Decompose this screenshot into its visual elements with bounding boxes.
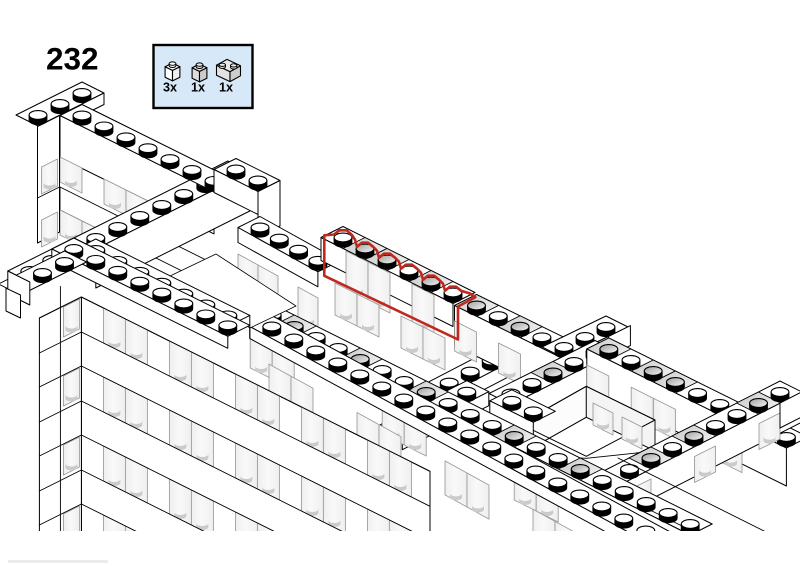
svg-text:232: 232: [46, 41, 99, 77]
svg-text:1x: 1x: [219, 81, 233, 95]
svg-text:3x: 3x: [163, 81, 177, 95]
svg-text:1x: 1x: [191, 81, 205, 95]
